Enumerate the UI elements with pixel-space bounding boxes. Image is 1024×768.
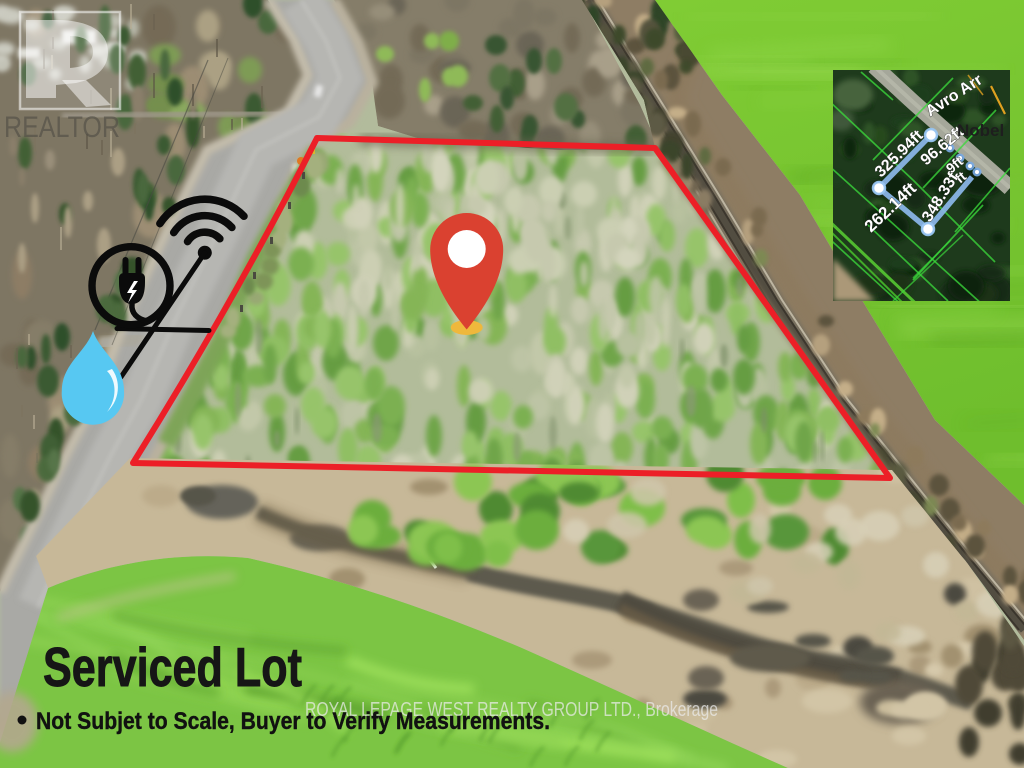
svg-text:REALTOR: REALTOR <box>4 111 120 144</box>
svg-text:Nobel: Nobel <box>957 121 1004 140</box>
svg-text:Serviced Lot: Serviced Lot <box>43 636 302 698</box>
svg-text:Not Subjet to Scale, Buyer to: Not Subjet to Scale, Buyer to Verify Mea… <box>36 708 550 735</box>
